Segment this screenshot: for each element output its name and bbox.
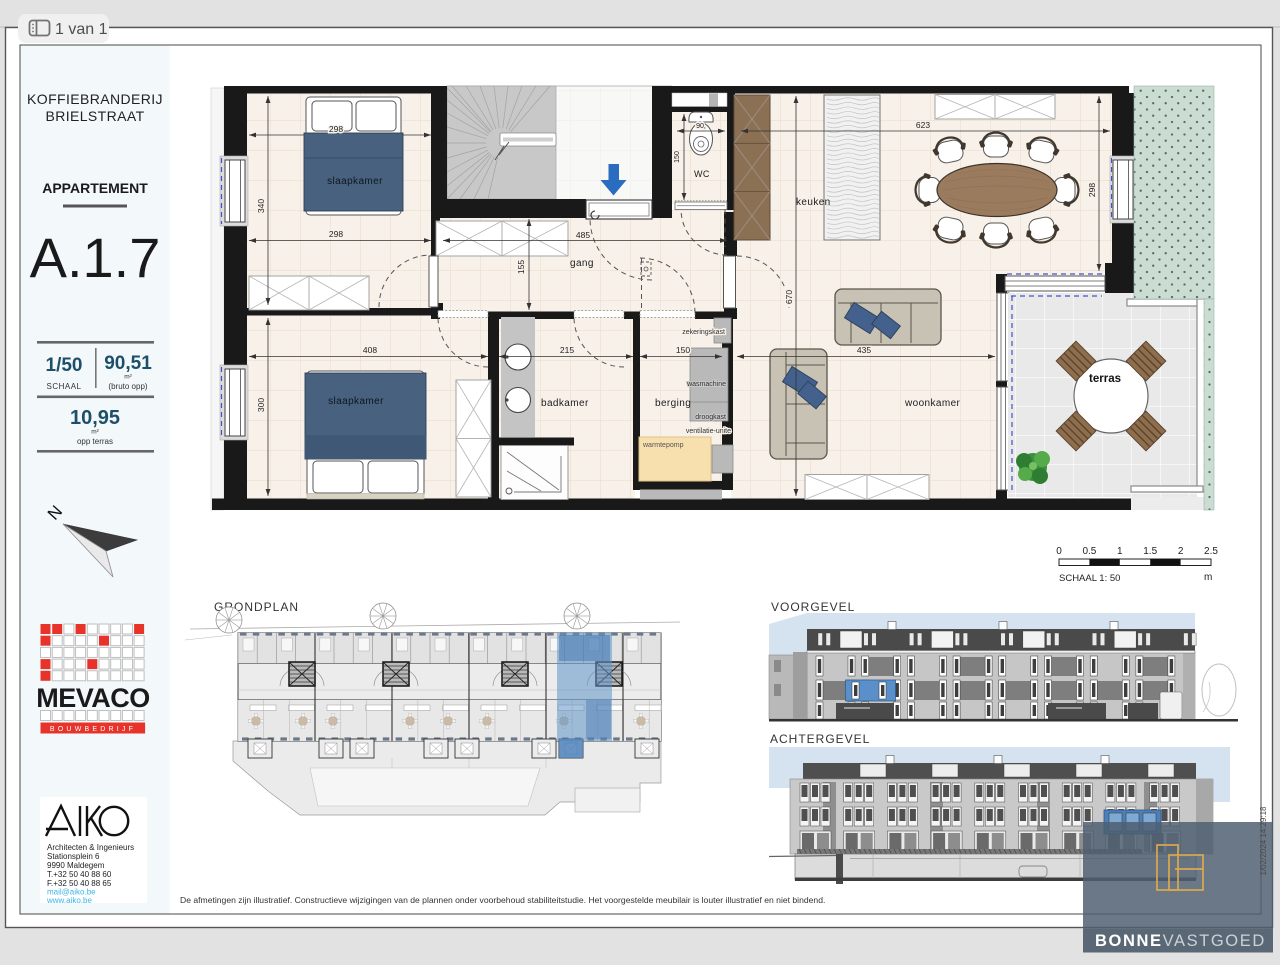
svg-text:wasmachine: wasmachine	[686, 381, 726, 388]
svg-text:150: 150	[676, 345, 690, 355]
svg-text:150: 150	[674, 151, 681, 163]
svg-text:10,95: 10,95	[70, 407, 120, 429]
svg-text:Architecten & Ingenieurs: Architecten & Ingenieurs	[47, 843, 134, 852]
svg-text:droogkast: droogkast	[695, 414, 726, 421]
svg-text:VOORGEVEL: VOORGEVEL	[771, 600, 855, 614]
svg-text:1/50: 1/50	[46, 355, 83, 376]
svg-text:woonkamer: woonkamer	[904, 398, 961, 409]
svg-text:1/02/2024 14:29:18: 1/02/2024 14:29:18	[1259, 806, 1268, 876]
svg-text:9990 Maldegem: 9990 Maldegem	[47, 861, 105, 870]
svg-text:670: 670	[784, 290, 794, 304]
svg-text:KOFFIEBRANDERIJ: KOFFIEBRANDERIJ	[27, 91, 163, 107]
svg-text:WC: WC	[694, 169, 710, 179]
svg-text:BONNEVASTGOED: BONNEVASTGOED	[1095, 932, 1266, 950]
svg-text:De afmetingen zijn illustratie: De afmetingen zijn illustratief. Constru…	[180, 895, 825, 905]
svg-text:298: 298	[1087, 183, 1097, 197]
svg-text:terras: terras	[1089, 373, 1121, 385]
svg-text:m²: m²	[124, 374, 132, 381]
svg-text:298: 298	[329, 229, 343, 239]
svg-text:298: 298	[329, 124, 343, 134]
svg-text:ventilatie-unite: ventilatie-unite	[686, 428, 731, 435]
svg-text:www.aiko.be: www.aiko.be	[46, 896, 92, 905]
svg-text:m: m	[1204, 572, 1212, 583]
svg-text:0.5: 0.5	[1082, 546, 1096, 557]
svg-text:485: 485	[576, 230, 590, 240]
svg-text:BRIELSTRAAT: BRIELSTRAAT	[45, 108, 144, 124]
svg-text:berging: berging	[655, 398, 691, 409]
svg-text:keuken: keuken	[796, 197, 831, 208]
svg-text:badkamer: badkamer	[541, 398, 589, 409]
svg-text:215: 215	[560, 345, 574, 355]
svg-text:2: 2	[1178, 546, 1184, 557]
svg-text:gang: gang	[570, 258, 594, 269]
svg-text:T.+32 50 40 88 60: T.+32 50 40 88 60	[47, 870, 112, 879]
svg-text:300: 300	[256, 398, 266, 412]
svg-text:SCHAAL: SCHAAL	[46, 382, 81, 391]
svg-text:1 van 1: 1 van 1	[55, 21, 108, 38]
svg-text:A.1.7: A.1.7	[30, 226, 161, 289]
svg-text:APPARTEMENT: APPARTEMENT	[42, 180, 148, 196]
svg-text:Stationsplein 6: Stationsplein 6	[47, 852, 100, 861]
svg-text:155: 155	[516, 260, 526, 274]
svg-text:1: 1	[1117, 546, 1123, 557]
svg-text:MEVACO: MEVACO	[36, 683, 150, 713]
svg-text:slaapkamer: slaapkamer	[328, 396, 384, 407]
svg-text:zekeringskast: zekeringskast	[682, 329, 725, 336]
svg-text:warmtepomp: warmtepomp	[642, 442, 684, 449]
svg-text:435: 435	[857, 345, 871, 355]
svg-text:340: 340	[256, 199, 266, 213]
svg-text:1.5: 1.5	[1143, 546, 1157, 557]
svg-text:90,51: 90,51	[104, 353, 152, 374]
svg-text:opp terras: opp terras	[77, 437, 113, 446]
svg-text:SCHAAL 1: 50: SCHAAL 1: 50	[1059, 573, 1120, 584]
svg-text:slaapkamer: slaapkamer	[327, 176, 383, 187]
svg-text:BOUWBEDRIJF: BOUWBEDRIJF	[50, 726, 136, 733]
svg-text:2.5: 2.5	[1204, 546, 1218, 557]
svg-text:ACHTERGEVEL: ACHTERGEVEL	[770, 732, 870, 746]
svg-text:623: 623	[916, 120, 930, 130]
svg-text:m²: m²	[91, 429, 99, 436]
svg-text:(bruto opp): (bruto opp)	[108, 382, 147, 391]
svg-text:90,: 90,	[696, 123, 706, 130]
svg-text:0: 0	[1056, 546, 1062, 557]
svg-text:408: 408	[363, 345, 377, 355]
